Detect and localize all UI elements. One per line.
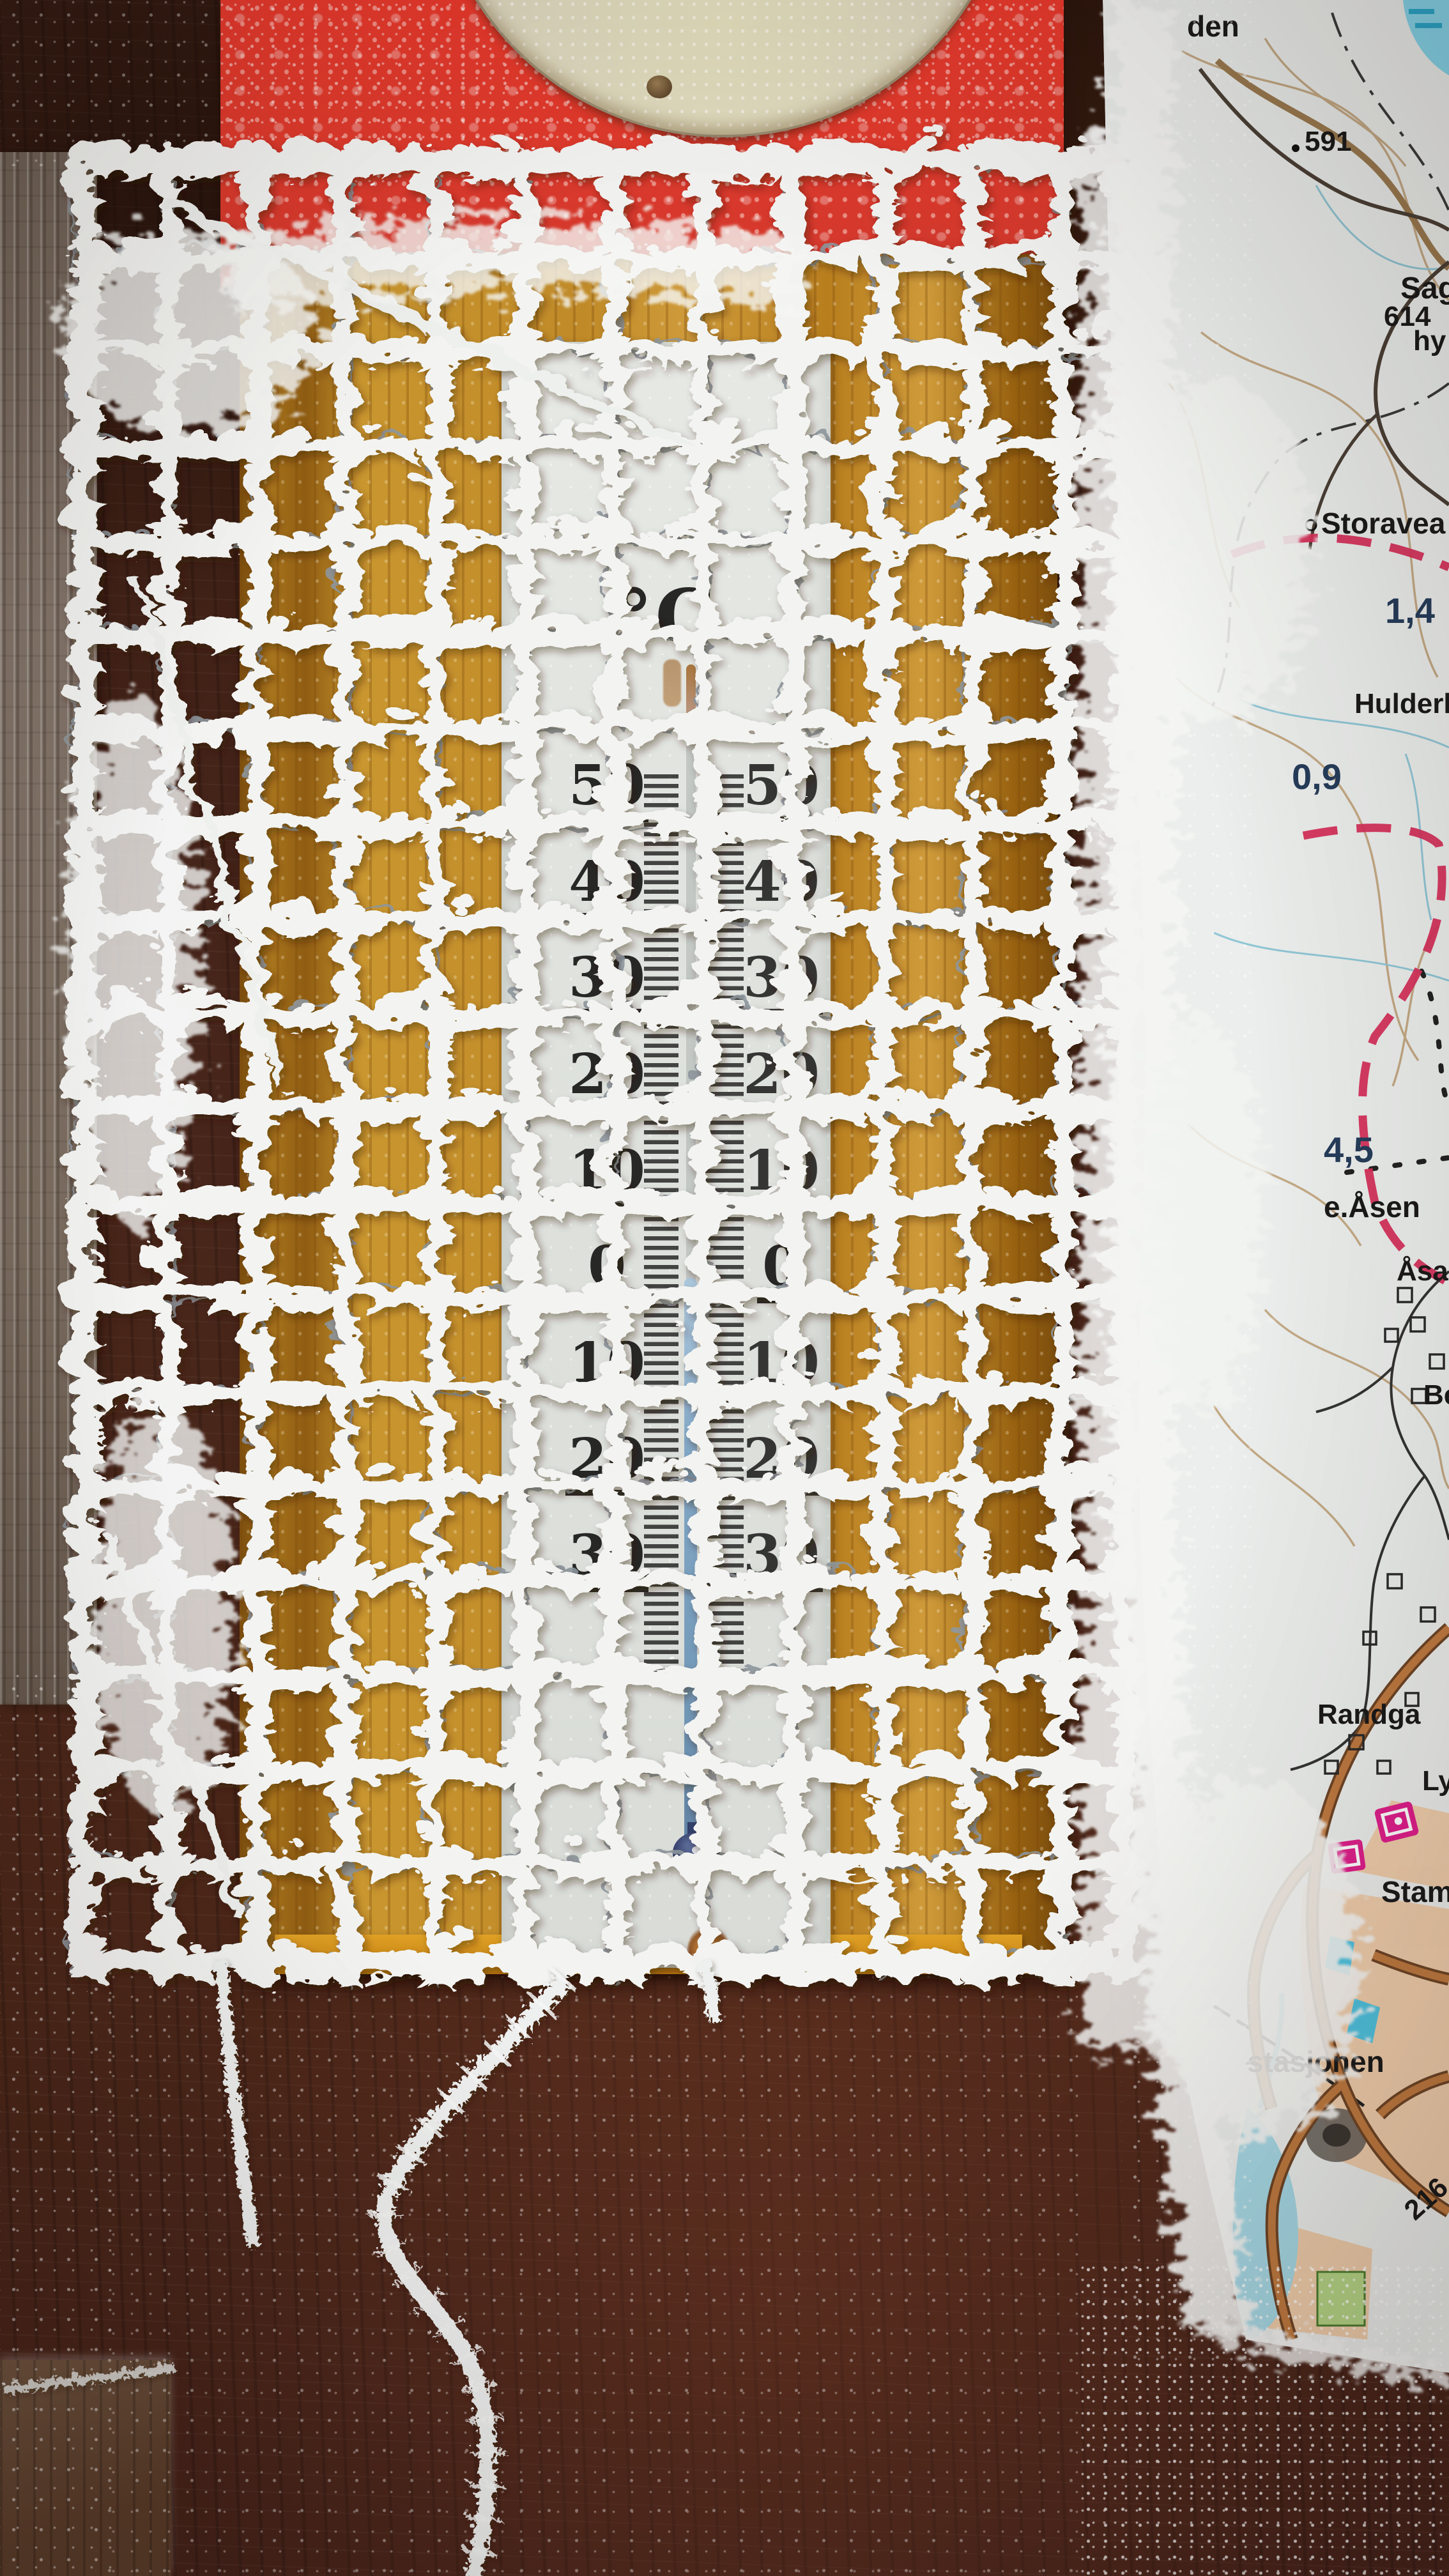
frost-string xyxy=(0,1956,710,2576)
photo-frosty-thermometer: °C 50 40 30 20 10 0 10 20 30 50 40 30 20… xyxy=(0,0,1449,2576)
frost-mesh xyxy=(0,0,1449,2576)
